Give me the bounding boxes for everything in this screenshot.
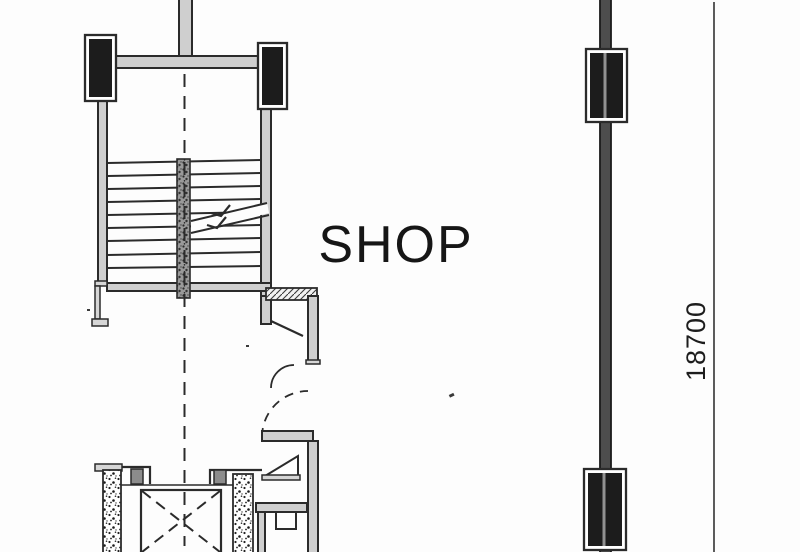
wall-top-horizontal: [88, 56, 285, 68]
wall-annex-right: [308, 441, 318, 552]
dimension-label: 18700: [681, 301, 711, 381]
column-right-bottom: [584, 469, 626, 550]
door-guide-right: [214, 470, 226, 484]
annex-sill: [262, 475, 300, 480]
wall-annex-lower: [256, 503, 307, 512]
room-label: SHOP: [318, 216, 473, 274]
scan-speck: [246, 345, 249, 347]
column-top-left: [85, 35, 116, 101]
column-right-top: [586, 49, 627, 122]
wall-alcove-right: [308, 296, 318, 363]
shaft-wall-left: [103, 470, 121, 552]
wall-end-cap: [306, 360, 320, 364]
floor-plan-drawing: 18700 SHOP: [0, 0, 800, 552]
wall-annex-lower-left: [258, 512, 265, 552]
shaft-wall-right: [233, 474, 253, 552]
wall-stair-right: [261, 107, 271, 296]
door-guide-left: [131, 469, 143, 484]
wall-left: [98, 99, 107, 284]
wall-top-vertical: [179, 0, 192, 60]
column-top-right: [258, 43, 287, 109]
scan-speck: [87, 309, 90, 311]
wall-annex-top: [262, 431, 313, 441]
